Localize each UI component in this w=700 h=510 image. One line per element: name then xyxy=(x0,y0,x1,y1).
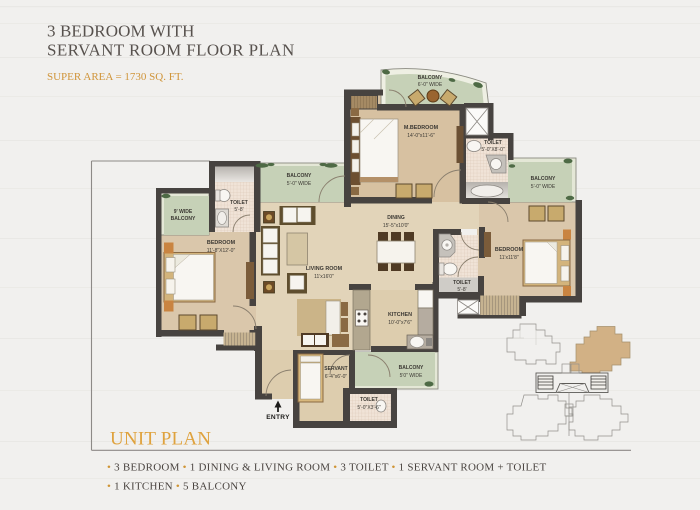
svg-text:BALCONY: BALCONY xyxy=(287,173,312,179)
svg-text:3 BEDROOM WITH: 3 BEDROOM WITH xyxy=(47,22,194,41)
svg-text:DINING: DINING xyxy=(387,215,405,221)
svg-text:BALCONY: BALCONY xyxy=(531,176,556,182)
svg-text:14'-0"x11'-6": 14'-0"x11'-6" xyxy=(407,133,435,139)
svg-text:TOILET: TOILET xyxy=(360,397,378,403)
svg-text:11'x11'8": 11'x11'8" xyxy=(499,255,519,261)
svg-text:15'-5"x10'0": 15'-5"x10'0" xyxy=(383,223,410,229)
svg-text:5'-0"X3'-6": 5'-0"X3'-6" xyxy=(357,405,380,411)
svg-text:11'x16'0": 11'x16'0" xyxy=(314,274,334,280)
svg-text:• 3 BEDROOM • 1 DINING & LIVIN: • 3 BEDROOM • 1 DINING & LIVING ROOM • 3… xyxy=(107,462,546,474)
svg-text:5'0" WIDE: 5'0" WIDE xyxy=(400,373,423,379)
svg-text:SUPER AREA = 1730 SQ. FT.: SUPER AREA = 1730 SQ. FT. xyxy=(47,71,184,83)
svg-text:KITCHEN: KITCHEN xyxy=(388,312,412,318)
svg-text:6'-4"x6'-0": 6'-4"x6'-0" xyxy=(325,374,348,380)
svg-text:SERVANT: SERVANT xyxy=(324,366,347,372)
svg-text:BEDROOM: BEDROOM xyxy=(495,247,524,253)
svg-text:5'-0"X8'-0": 5'-0"X8'-0" xyxy=(481,147,504,153)
svg-text:5'-0" WIDE: 5'-0" WIDE xyxy=(531,184,556,190)
svg-text:M.BEDROOM: M.BEDROOM xyxy=(404,125,439,131)
svg-text:UNIT PLAN: UNIT PLAN xyxy=(110,429,211,450)
svg-text:BEDROOM: BEDROOM xyxy=(207,240,236,246)
svg-text:10'-0"x7'6": 10'-0"x7'6" xyxy=(388,320,412,326)
svg-text:TOILET: TOILET xyxy=(453,280,471,286)
svg-text:5'-8': 5'-8' xyxy=(234,207,243,213)
svg-text:LIVING ROOM: LIVING ROOM xyxy=(306,266,343,272)
svg-text:6'-0" WIDE: 6'-0" WIDE xyxy=(418,82,443,88)
svg-text:SERVANT ROOM FLOOR PLAN: SERVANT ROOM FLOOR PLAN xyxy=(47,41,295,60)
svg-text:11'-8"X12'-0": 11'-8"X12'-0" xyxy=(207,248,236,254)
svg-text:• 1 KITCHEN • 5 BALCONY: • 1 KITCHEN • 5 BALCONY xyxy=(107,481,247,493)
svg-text:TOILET: TOILET xyxy=(230,200,248,206)
svg-text:BALCONY: BALCONY xyxy=(399,365,424,371)
svg-text:BALCONY: BALCONY xyxy=(418,75,443,81)
svg-text:BALCONY: BALCONY xyxy=(171,216,196,222)
svg-text:ENTRY: ENTRY xyxy=(266,414,290,421)
svg-text:TOILET: TOILET xyxy=(484,140,502,146)
svg-text:9' WIDE: 9' WIDE xyxy=(174,209,193,215)
svg-text:5'-0" WIDE: 5'-0" WIDE xyxy=(287,181,312,187)
svg-text:5'-8': 5'-8' xyxy=(457,287,466,293)
